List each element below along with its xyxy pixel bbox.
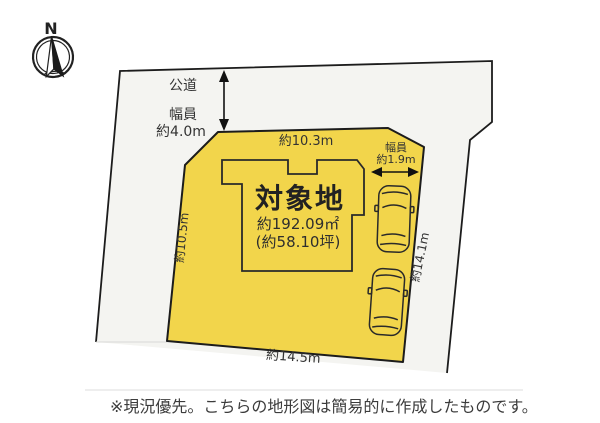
plot-title: 対象地 xyxy=(255,182,345,215)
north-compass-icon: N xyxy=(32,19,75,78)
compass-north-label: N xyxy=(44,19,57,38)
road-width-caption-line2: 約4.0m xyxy=(156,124,206,140)
plot-area-tsubo: (約58.10坪) xyxy=(256,233,341,251)
passage-width-caption-line2: 約1.9m xyxy=(376,152,415,166)
road-label: 公道 xyxy=(169,78,197,94)
plot-diagram: N 公道 幅員 約4.0m 約10.3m 幅員 約1.9m 約10.5m 約14… xyxy=(0,0,600,423)
dim-top-label: 約10.3m xyxy=(279,134,334,149)
dim-bottom-label: 約14.5m xyxy=(265,348,321,367)
road-width-caption-line1: 幅員 xyxy=(169,107,197,123)
footer-note: ※現況優先。こちらの地形図は簡易的に作成したものです。 xyxy=(110,397,538,416)
plot-area-sqm: 約192.09㎡ xyxy=(257,215,340,233)
